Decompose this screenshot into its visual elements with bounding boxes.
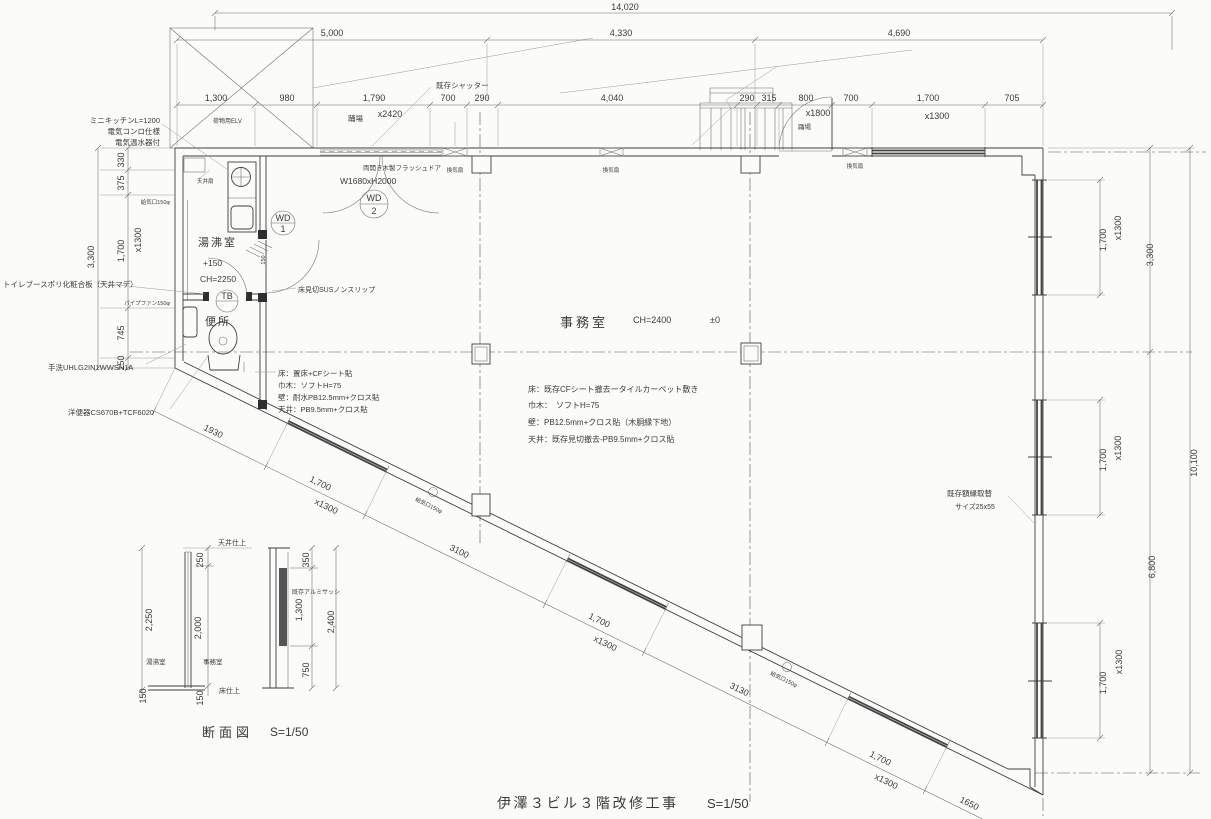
shutter-size: x2420	[378, 109, 403, 119]
elevator-label: 荷物用ELV	[213, 117, 242, 125]
leader-lines	[97, 87, 1035, 524]
dimension-lines	[95, 10, 1195, 819]
section-scale: S=1/50	[270, 725, 309, 739]
section-title: 断面図	[202, 725, 253, 740]
toilet-note-line: 巾木：ソフトH=75	[278, 380, 341, 390]
toilet-note-line: 壁：耐水PB12.5mm+クロス貼	[278, 392, 380, 402]
room-texts: 事務室 CH=2400 ±0 湯沸室 +150 CH=2250 便所 WD 2 …	[198, 193, 720, 330]
dim-label: x1300	[592, 633, 618, 653]
right-wall-windows	[1028, 180, 1052, 738]
dim-label: 1,300	[205, 93, 228, 103]
dim-label: 1,700	[1098, 229, 1108, 252]
dim-label: 10,100	[1189, 449, 1199, 477]
office-ch: CH=2400	[633, 315, 671, 325]
dim-label: 330	[116, 152, 126, 167]
frame-replace-label: 既存額縁取替	[947, 488, 992, 498]
dim-label: 1,790	[363, 93, 386, 103]
sheet-title: 伊澤３ビル３階改修工事 S=1/50	[497, 795, 749, 811]
door-symbol-wd2-num: 2	[371, 206, 376, 216]
grid-chain-lines	[130, 112, 1206, 816]
dimension-texts: 14,020 5,000 4,330 4,690 1,300 980 1,790…	[86, 2, 1199, 812]
ceiling-fan-label: 天井扇	[197, 177, 214, 185]
dim-label: 2,000	[193, 617, 203, 640]
kitchen-note-1: ミニキッチンL=1200	[90, 116, 160, 125]
section-ceiling-label: 天井仕上	[218, 538, 246, 547]
dim-label: 700	[440, 93, 455, 103]
dim-label: 1,700	[587, 611, 612, 630]
toilet-fixture-label: 洋便器CS670B+TCF6020	[68, 407, 154, 417]
annotation-texts: 既存シャッター 荷物用ELV 踊場 踊場 ミニキッチンL=1200 電気コンロ仕…	[3, 80, 995, 689]
vent-fan-label: 換気扇	[847, 162, 864, 170]
dim-label: x1300	[313, 496, 339, 516]
landing-label-top: 踊場	[348, 113, 363, 123]
dim-label: 1,700	[917, 93, 940, 103]
kitchen-ch: CH=2250	[200, 274, 236, 284]
door-size-label: W1680xH2000	[340, 176, 397, 186]
handwash-label: 手洗UHLG2IN1WWSN1A	[48, 362, 133, 372]
dim-label: 980	[279, 93, 294, 103]
top-wall-openings	[320, 122, 985, 157]
dim-label: 315	[761, 93, 776, 103]
supply-vent-diag-label: 給気口150φ	[769, 669, 799, 689]
dim-label: 150	[195, 690, 205, 705]
dim-label: 290	[474, 93, 489, 103]
floor-plan-sheet: 14,020 5,000 4,330 4,690 1,300 980 1,790…	[0, 0, 1211, 819]
section-texts: 天井仕上 250 2,250 2,000 湯沸室 事務室 150 150 350…	[138, 538, 340, 740]
supply-vent-label: 給気口150φ	[141, 198, 171, 206]
section-floor-label: 床仕上	[219, 686, 240, 695]
dim-label: 6,800	[1147, 556, 1157, 579]
dim-label: x1300	[1113, 436, 1123, 461]
kitchen-note-3: 電気温水器付	[115, 137, 160, 147]
dim-label: 705	[1004, 93, 1019, 103]
doors	[208, 97, 832, 297]
dim-label: 1,700	[308, 474, 333, 493]
dim-label: 4,330	[610, 28, 633, 38]
dim-label: 1,300	[294, 599, 304, 622]
dim-label: 375	[116, 175, 126, 190]
dim-label: 150	[138, 688, 148, 703]
dim-label: 4,040	[601, 93, 624, 103]
drawing-scale: S=1/50	[707, 796, 749, 811]
kitchen-note-2: 電気コンロ仕様	[108, 126, 161, 136]
shutter-label: 既存シャッター	[436, 80, 489, 90]
dim-label: 700	[843, 93, 858, 103]
step-height-label: 150	[261, 255, 267, 264]
dim-label: 2,250	[144, 609, 154, 632]
dim-label: x1300	[133, 228, 143, 253]
frame-size-label: サイズ25x55	[955, 502, 995, 511]
kitchen-level: +150	[203, 258, 222, 268]
office-note-line: 床：既存CFシート撤去ータイルカーペット敷き	[528, 384, 698, 394]
dim-total-width: 14,020	[611, 2, 639, 12]
dim-label: x1300	[1113, 216, 1123, 241]
dim-label: 1,700	[116, 240, 126, 263]
room-toilet: 便所	[205, 315, 231, 328]
door-symbol-wd1: WD	[276, 213, 291, 223]
dim-label: 290	[739, 93, 754, 103]
door-symbol-tb: TB	[221, 291, 233, 301]
stair	[692, 66, 792, 150]
dim-label: 1650	[958, 794, 980, 812]
office-note-line: 壁：PB12.5mm+クロス貼（木胴縁下地）	[528, 417, 676, 427]
section-room-left: 湯沸室	[146, 657, 166, 666]
vent-fan-label: 換気扇	[447, 166, 464, 174]
threshold-label: 床見切SUSノンスリップ	[298, 285, 375, 294]
office-note-line: 天井：既存見切撤去-PB9.5mm+クロス貼	[528, 434, 674, 444]
dim-label: 800	[798, 93, 813, 103]
dim-label: 350	[301, 552, 311, 567]
dim-label: 3,300	[1145, 244, 1155, 267]
freight-elevator-shaft	[170, 28, 313, 148]
diagonal-wall-windows	[286, 417, 949, 749]
section-sash-label: 既存アルミサッシ	[292, 588, 340, 596]
exterior-walls	[175, 148, 1043, 795]
dim-label: 1,700	[868, 749, 893, 768]
door-symbol-wd2: WD	[367, 193, 382, 203]
dim-label: 1,700	[1098, 672, 1108, 695]
dim-label: 250	[195, 552, 205, 567]
window-size: x1300	[925, 111, 950, 121]
dim-label: 1,700	[1098, 449, 1108, 472]
dim-label: 1930	[202, 422, 224, 440]
toilet-booth-label: トイレブースポリ化粧合板（天井マデ）	[3, 279, 138, 289]
dim-label: 5,000	[321, 28, 344, 38]
vent-fan-label: 換気扇	[603, 166, 620, 174]
toilet-note-line: 天井：PB9.5mm+クロス貼	[278, 404, 368, 414]
office-level: ±0	[710, 315, 720, 325]
door-spec-label: 両開き木製フラッシュドア	[363, 163, 442, 172]
toilet-note-line: 床：置床+CFシート貼	[278, 368, 353, 378]
finish-notes: 床：置床+CFシート貼 巾木：ソフトH=75 壁：耐水PB12.5mm+クロス貼…	[278, 368, 698, 444]
landing-label-right: 踊場	[798, 122, 812, 131]
drawing-title: 伊澤３ビル３階改修工事	[497, 795, 679, 811]
dim-label: x1300	[1114, 650, 1124, 675]
door-size: x1800	[806, 108, 831, 118]
section-room-right: 事務室	[203, 657, 223, 666]
door-symbol-wd1-num: 1	[280, 224, 285, 234]
dim-label: 2,400	[326, 611, 336, 634]
room-kitchen: 湯沸室	[198, 235, 237, 249]
dim-label: 4,690	[888, 28, 911, 38]
pipe-fan-label: パイプファン150φ	[124, 300, 170, 307]
dim-label: 3,300	[86, 246, 96, 269]
construction-lines	[313, 38, 912, 93]
dim-label: 745	[116, 325, 126, 340]
office-note-line: 巾木： ソフトH=75	[528, 400, 600, 410]
room-office: 事務室	[560, 315, 608, 330]
dim-label: 750	[301, 662, 311, 677]
dim-label: x1300	[873, 771, 899, 791]
floor-plan-drawing: 14,020 5,000 4,330 4,690 1,300 980 1,790…	[0, 0, 1211, 819]
